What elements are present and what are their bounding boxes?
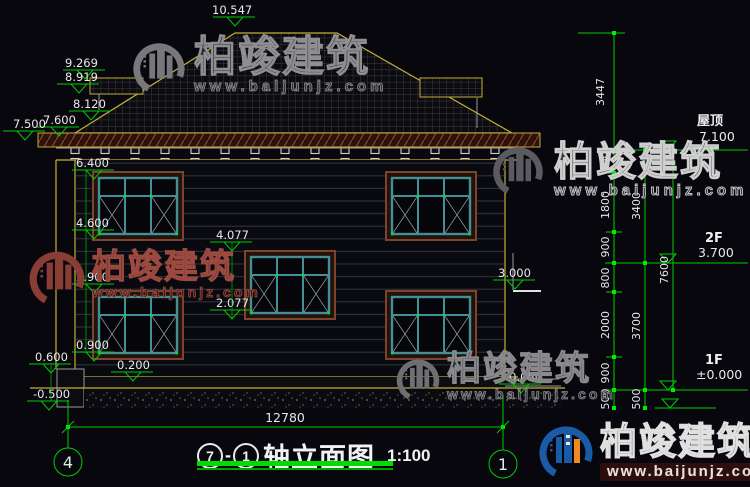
cad-elevation-screenshot: { "colors": { "background": "#07070d", "… xyxy=(0,0,750,487)
level-ridge: 10.547 xyxy=(212,3,252,17)
level-left-wing-upper: 9.269 xyxy=(65,56,98,70)
level-eave-inner: 7.600 xyxy=(43,113,76,127)
level-porch-ground: -0.050 xyxy=(505,370,542,384)
dim-outer-7600: 7600 xyxy=(658,256,671,284)
f1-level-value: ±0.000 xyxy=(696,367,742,382)
main-roof xyxy=(75,33,512,133)
title-underline-thick xyxy=(197,461,393,466)
dim-mid-3400: 3400 xyxy=(630,192,643,220)
dim-mid-3700: 3700 xyxy=(630,312,643,340)
dim-inner-1800: 1800 xyxy=(599,191,612,219)
roof-level-value: 7.100 xyxy=(699,129,735,144)
f2-level-label: 2F xyxy=(705,231,723,246)
level-stair-window-head: 4.077 xyxy=(216,228,249,242)
dim-inner-800: 800 xyxy=(599,268,612,289)
dim-inner-900a: 900 xyxy=(599,237,612,258)
dim-inner-900b: 900 xyxy=(599,363,612,384)
level-porch-head: 3.000 xyxy=(498,266,531,280)
level-left-wing-lower: 8.919 xyxy=(65,70,98,84)
level-stair-window-sill: 2.077 xyxy=(216,296,249,310)
dim-inner-500: 500 xyxy=(599,389,612,410)
dim-inner-2000: 2000 xyxy=(599,311,612,339)
rafter-brackets xyxy=(56,148,518,160)
roof-level-label: 屋顶 xyxy=(697,114,723,129)
dim-overall-width: 12780 xyxy=(265,410,305,425)
left-wing-roof xyxy=(90,78,143,94)
level-ground: -0.500 xyxy=(33,387,70,401)
f2-level-value: 3.700 xyxy=(698,245,734,260)
dimension-chains: 3447 700 1800 900 800 2000 900 500 3400 … xyxy=(578,31,688,410)
level-upper-window-sill: 4.600 xyxy=(76,216,109,230)
right-wing-roof xyxy=(420,78,482,97)
dim-inner-700: 700 xyxy=(599,152,612,173)
level-plinth-top: 0.200 xyxy=(117,358,150,372)
window-upper-right xyxy=(386,172,476,240)
title-underline-thin xyxy=(197,468,393,470)
plinth-face xyxy=(76,377,504,388)
dim-roof-rise: 3447 xyxy=(594,78,607,106)
axis-bubble-left-number: 4 xyxy=(63,453,73,472)
level-plinth-side: 0.600 xyxy=(35,350,68,364)
eave-fascia xyxy=(38,133,540,160)
level-floor-band: 2.900 xyxy=(76,270,109,284)
title-scale: 1:100 xyxy=(387,446,430,466)
window-stair-center xyxy=(245,251,335,319)
elevation-drawing: 10.547 9.269 8.919 8.120 7.600 7.500 6.4… xyxy=(0,0,750,487)
ground-hatch xyxy=(84,389,562,409)
level-eave-outer: 7.500 xyxy=(13,117,46,131)
level-wall-top: 6.400 xyxy=(76,156,109,170)
f1-level-label: 1F xyxy=(705,353,723,368)
dim-mid-500: 500 xyxy=(630,389,643,410)
window-lower-right xyxy=(386,291,476,359)
level-lower-window-sill: 0.900 xyxy=(76,338,109,352)
level-left-wing-eave: 8.120 xyxy=(73,97,106,111)
axis-bubble-right-number: 1 xyxy=(498,455,508,474)
